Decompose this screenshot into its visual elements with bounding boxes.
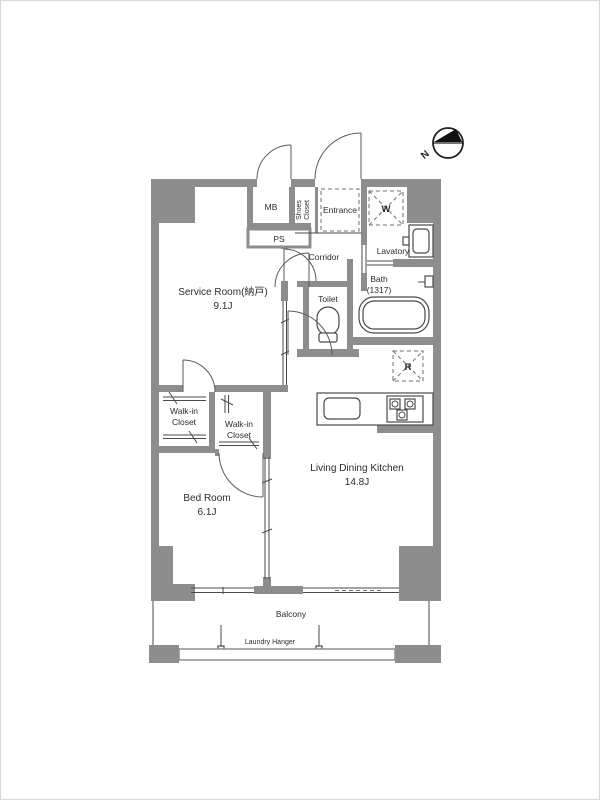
entrance-label: Entrance (323, 205, 357, 215)
ldk-size: 14.8J (345, 477, 369, 488)
ldk-label: Living Dining Kitchen (310, 463, 403, 474)
pipe-space: PS (248, 229, 310, 247)
column-bottom-right (399, 546, 441, 601)
shoes-closet-label-2: Closet (304, 200, 311, 220)
walk-in-closet-2: Walk-in Closet (219, 395, 259, 449)
balcony-label: Balcony (276, 609, 307, 619)
kitchen-sink-icon (324, 398, 360, 419)
living-dining-kitchen: Living Dining Kitchen 14.8J R (310, 351, 433, 488)
bedroom: Bed Room 6.1J (183, 457, 272, 579)
shoes-closet: Shoes Closet (296, 200, 311, 220)
laundry-hanger-label: Laundry Hanger (245, 639, 296, 646)
kitchen-counter-icon (317, 393, 433, 425)
column-top-right (407, 179, 441, 223)
toilet: Toilet (317, 294, 339, 342)
column-top-left (151, 179, 195, 223)
bath-size-label: (1317) (367, 285, 392, 295)
washing-machine-space: W (369, 191, 403, 225)
service-room: Service Room(納戸) 9.1J (178, 285, 289, 385)
toilet-label: Toilet (318, 294, 338, 304)
wic1-label-2: Closet (172, 417, 197, 427)
stove-icon (387, 396, 423, 422)
mb-label: MB (265, 202, 278, 212)
bath-faucet-icon (418, 276, 433, 287)
balcony-railing (149, 645, 441, 663)
compass-north-icon: N (419, 128, 463, 162)
wic1-label-1: Walk-in (170, 406, 198, 416)
wic2-label-2: Closet (227, 430, 252, 440)
bedroom-size: 6.1J (198, 507, 217, 518)
bathtub-icon (359, 297, 429, 333)
corridor-label: Corridor (309, 252, 340, 262)
lavatory-label: Lavatory (377, 246, 410, 256)
service-room-size: 9.1J (214, 301, 233, 312)
bath-label: Bath (370, 274, 388, 284)
balcony: Balcony Laundry Hanger (149, 601, 441, 663)
bath: Bath (1317) (359, 261, 433, 333)
service-room-label: Service Room(納戸) (178, 285, 267, 298)
wic2-label-1: Walk-in (225, 419, 253, 429)
compass-n-label: N (419, 149, 432, 162)
fridge-label: R (405, 362, 412, 373)
ps-label: PS (273, 234, 285, 244)
bedroom-label: Bed Room (183, 493, 230, 504)
floor-plan-page: N (0, 0, 600, 800)
floor-plan-drawing: N (1, 1, 600, 801)
walk-in-closet-1: Walk-in Closet (163, 392, 206, 443)
washer-label: W (382, 204, 391, 215)
laundry-hanger: Laundry Hanger (218, 625, 322, 651)
refrigerator-space: R (393, 351, 423, 381)
shoes-closet-label-1: Shoes (296, 200, 303, 220)
